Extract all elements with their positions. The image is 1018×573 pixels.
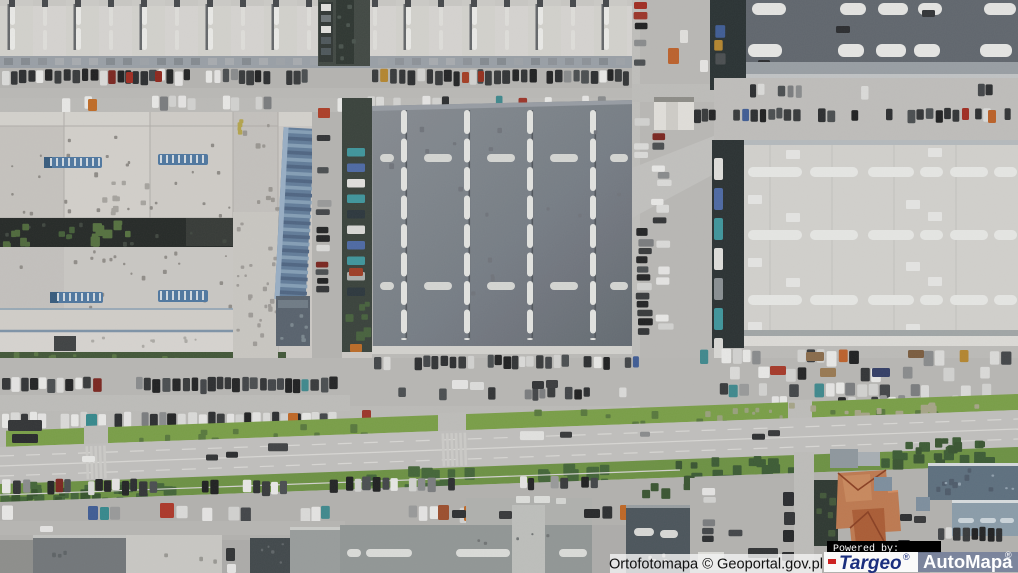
svg-text:®: ® <box>1005 550 1012 560</box>
svg-text:®: ® <box>903 552 910 562</box>
svg-text:AutoMapa: AutoMapa <box>923 551 1013 572</box>
svg-text:Ortofotomapa © Geoportal.gov.p: Ortofotomapa © Geoportal.gov.pl <box>609 557 823 573</box>
svg-text:Targeo: Targeo <box>839 553 902 573</box>
